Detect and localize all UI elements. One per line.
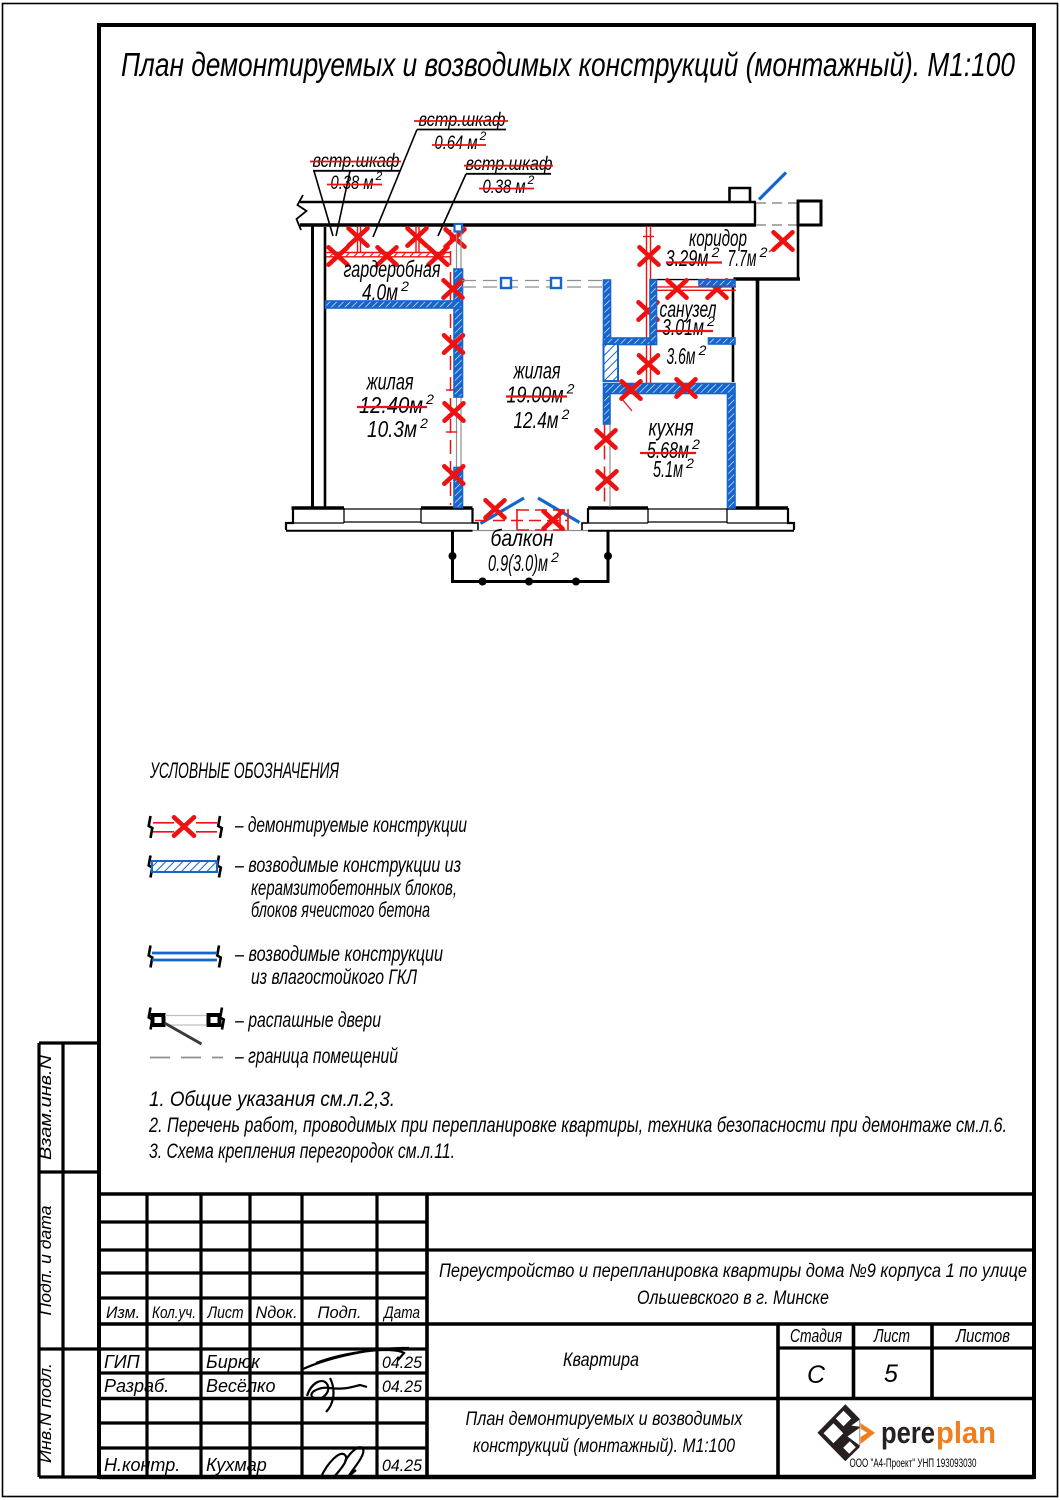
svg-text:0.38 м: 0.38 м <box>483 177 526 198</box>
svg-text:– возводимые конструкции: – возводимые конструкции <box>234 943 443 966</box>
svg-text:балкон: балкон <box>491 525 554 551</box>
svg-text:2: 2 <box>527 173 535 187</box>
svg-text:Стадия: Стадия <box>790 1326 842 1346</box>
svg-text:2: 2 <box>425 391 434 407</box>
svg-text:2: 2 <box>711 244 720 260</box>
svg-text:Листов: Листов <box>955 1326 1010 1346</box>
svg-text:04.25: 04.25 <box>382 1456 423 1475</box>
svg-text:2: 2 <box>685 455 694 471</box>
svg-text:2. Перечень работ, проводимых: 2. Перечень работ, проводимых при перепл… <box>148 1114 1007 1137</box>
svg-text:жилая: жилая <box>513 358 561 384</box>
svg-text:1. Общие указания см.л.2,3.: 1. Общие указания см.л.2,3. <box>149 1088 395 1111</box>
svg-text:ГИП: ГИП <box>104 1352 141 1372</box>
svg-text:– распашные двери: – распашные двери <box>234 1009 381 1032</box>
svg-text:Инв.N подл.: Инв.N подл. <box>36 1363 55 1463</box>
svg-text:С: С <box>807 1361 826 1389</box>
svg-text:Подп. и дата: Подп. и дата <box>36 1206 55 1316</box>
svg-text:5: 5 <box>884 1360 898 1388</box>
svg-text:Дата: Дата <box>382 1303 420 1322</box>
svg-text:Переустройство и перепланировк: Переустройство и перепланировка квартиры… <box>439 1261 1027 1282</box>
svg-text:конструкций (монтажный). М1:10: конструкций (монтажный). М1:100 <box>473 1436 735 1457</box>
svg-text:2: 2 <box>561 406 570 422</box>
svg-text:2: 2 <box>698 342 707 358</box>
svg-text:2: 2 <box>550 549 559 565</box>
svg-text:04.25: 04.25 <box>382 1377 423 1396</box>
svg-text:встр.шкаф: встр.шкаф <box>466 154 553 175</box>
svg-text:Бирюк: Бирюк <box>206 1352 261 1372</box>
svg-text:Ольшевского в г. Минске: Ольшевского в г. Минске <box>637 1288 829 1309</box>
svg-text:plan: plan <box>936 1415 996 1450</box>
svg-text:2: 2 <box>400 278 409 294</box>
svg-text:3. Схема крепления перегородо: 3. Схема крепления перегородок см.л.11. <box>149 1140 455 1163</box>
svg-text:0.38 м: 0.38 м <box>331 173 374 194</box>
svg-text:7.7м: 7.7м <box>728 245 757 271</box>
svg-text:из влагостойкого ГКЛ: из влагостойкого ГКЛ <box>251 966 417 989</box>
svg-text:19.00м: 19.00м <box>507 382 564 408</box>
svg-text:2: 2 <box>419 415 428 431</box>
svg-text:– граница помещений: – граница помещений <box>234 1045 398 1068</box>
svg-text:Квартира: Квартира <box>563 1350 639 1371</box>
svg-text:0.9(3.0)м: 0.9(3.0)м <box>488 550 548 576</box>
svg-text:Подп.: Подп. <box>318 1303 362 1322</box>
svg-text:5.1м: 5.1м <box>653 456 683 482</box>
svg-text:Кухмар: Кухмар <box>206 1455 267 1475</box>
svg-text:Разраб.: Разраб. <box>104 1376 169 1396</box>
svg-text:3.6м: 3.6м <box>667 343 696 369</box>
svg-text:Лист: Лист <box>873 1326 910 1346</box>
svg-text:Кол.уч.: Кол.уч. <box>152 1303 196 1322</box>
svg-text:Взам.инв.N: Взам.инв.N <box>36 1054 55 1160</box>
svg-text:Н.контр.: Н.контр. <box>104 1455 180 1475</box>
svg-text:12.4м: 12.4м <box>514 407 559 433</box>
svg-text:жилая: жилая <box>366 369 414 395</box>
svg-text:– возводимые конструкции из: – возводимые конструкции из <box>234 854 461 877</box>
svg-text:2: 2 <box>706 313 715 329</box>
svg-text:0.64 м: 0.64 м <box>435 133 478 154</box>
svg-text:10.3м: 10.3м <box>367 416 417 442</box>
svg-text:12.40м: 12.40м <box>359 392 423 418</box>
svg-text:Весёлко: Весёлко <box>206 1376 276 1396</box>
svg-text:2: 2 <box>479 129 487 143</box>
svg-text:pere: pere <box>881 1415 935 1450</box>
svg-text:Nдок.: Nдок. <box>256 1303 298 1322</box>
svg-text:2: 2 <box>375 169 383 183</box>
svg-text:2: 2 <box>759 244 768 260</box>
svg-text:керамзитобетонных блоков,: керамзитобетонных блоков, <box>251 877 457 900</box>
svg-text:3.29м: 3.29м <box>666 245 709 271</box>
svg-text:Изм.: Изм. <box>106 1303 140 1322</box>
svg-text:ООО "А4-Проект" УНП 193093030: ООО "А4-Проект" УНП 193093030 <box>850 1458 977 1470</box>
svg-text:План демонтируемых и возводимы: План демонтируемых и возводимых <box>466 1409 744 1430</box>
svg-text:План демонтируемых и возвод: План демонтируемых и возводимых конструк… <box>121 46 1016 83</box>
svg-text:Лист: Лист <box>207 1303 244 1322</box>
svg-text:2: 2 <box>566 381 575 397</box>
svg-text:3.01м: 3.01м <box>662 314 704 340</box>
svg-text:2: 2 <box>691 436 700 452</box>
svg-text:4.0м: 4.0м <box>362 279 398 305</box>
svg-text:– демонтируемые конструкции: – демонтируемые конструкции <box>234 814 467 837</box>
svg-text:блоков ячеистого бетона: блоков ячеистого бетона <box>251 899 430 922</box>
svg-text:УСЛОВНЫЕ ОБОЗНАЧЕНИЯ: УСЛОВНЫЕ ОБОЗНАЧЕНИЯ <box>149 758 339 783</box>
